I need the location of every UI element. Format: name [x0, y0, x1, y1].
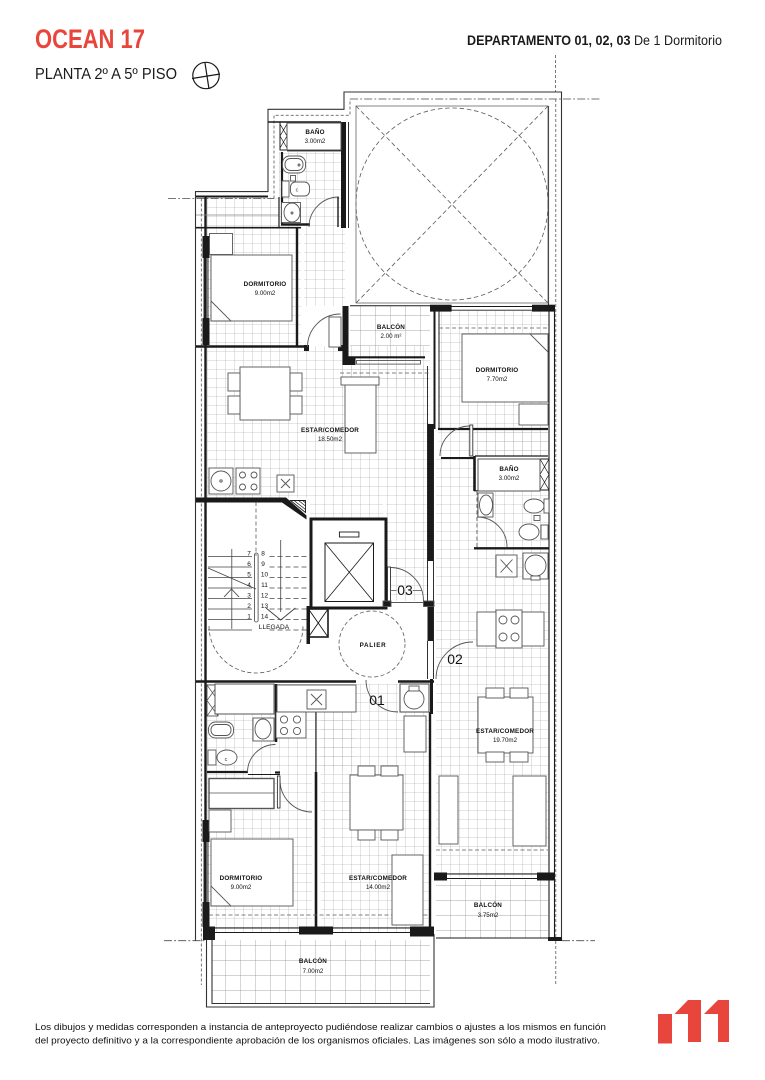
- svg-text:18.50m2: 18.50m2: [318, 436, 343, 443]
- svg-text:12: 12: [261, 593, 269, 600]
- svg-text:BALCÓN: BALCÓN: [299, 956, 327, 965]
- svg-text:03: 03: [397, 582, 413, 598]
- svg-text:19.70m2: 19.70m2: [493, 737, 518, 744]
- svg-text:c: c: [296, 188, 299, 194]
- svg-text:5: 5: [247, 572, 251, 579]
- svg-text:4: 4: [247, 582, 251, 589]
- svg-text:6: 6: [247, 561, 251, 568]
- svg-text:del proyecto definitivo y a la: del proyecto definitivo y a la correspon…: [35, 1036, 600, 1046]
- svg-text:Los dibujos y medidas correspo: Los dibujos y medidas corresponden a ins…: [35, 1022, 606, 1032]
- svg-text:DORMITORIO: DORMITORIO: [244, 281, 287, 288]
- svg-text:ESTAR/COMEDOR: ESTAR/COMEDOR: [349, 875, 407, 882]
- svg-text:02: 02: [447, 651, 463, 667]
- svg-text:OCEAN 17: OCEAN 17: [35, 24, 145, 54]
- svg-text:3: 3: [247, 593, 251, 600]
- svg-text:14: 14: [261, 614, 269, 621]
- svg-text:DORMITORIO: DORMITORIO: [476, 367, 519, 374]
- svg-text:3.00m2: 3.00m2: [499, 475, 520, 482]
- svg-text:2: 2: [247, 603, 251, 610]
- svg-text:3.75m2: 3.75m2: [478, 912, 499, 919]
- svg-text:BALCÓN: BALCÓN: [377, 322, 405, 331]
- svg-text:1: 1: [247, 614, 251, 621]
- svg-text:c: c: [225, 757, 228, 763]
- svg-text:10: 10: [261, 572, 269, 579]
- svg-text:PALIER: PALIER: [360, 642, 387, 649]
- svg-text:DEPARTAMENTO 01, 02, 03 De 1 D: DEPARTAMENTO 01, 02, 03 De 1 Dormitorio: [467, 33, 722, 48]
- svg-text:7.00m2: 7.00m2: [303, 968, 324, 975]
- svg-text:9.00m2: 9.00m2: [255, 290, 276, 297]
- svg-text:14.00m2: 14.00m2: [366, 884, 391, 891]
- svg-text:13: 13: [261, 603, 269, 610]
- svg-text:01: 01: [369, 692, 385, 708]
- svg-text:9.00m2: 9.00m2: [231, 884, 252, 891]
- svg-text:7: 7: [247, 551, 251, 558]
- svg-text:3.00m2: 3.00m2: [305, 138, 326, 145]
- svg-text:2.00 m²: 2.00 m²: [381, 333, 402, 340]
- svg-text:LLEGADA: LLEGADA: [259, 624, 290, 631]
- svg-text:PLANTA 2º A 5º PISO: PLANTA 2º A 5º PISO: [35, 66, 177, 83]
- svg-text:ESTAR/COMEDOR: ESTAR/COMEDOR: [301, 427, 359, 434]
- svg-text:11: 11: [261, 582, 268, 589]
- svg-text:BAÑO: BAÑO: [305, 127, 324, 136]
- svg-text:DORMITORIO: DORMITORIO: [220, 875, 263, 882]
- svg-text:ESTAR/COMEDOR: ESTAR/COMEDOR: [476, 728, 534, 735]
- svg-text:BAÑO: BAÑO: [499, 464, 518, 473]
- svg-text:9: 9: [261, 561, 265, 568]
- svg-text:BALCÓN: BALCÓN: [474, 900, 502, 909]
- svg-text:8: 8: [261, 551, 265, 558]
- svg-text:7.70m2: 7.70m2: [487, 376, 508, 383]
